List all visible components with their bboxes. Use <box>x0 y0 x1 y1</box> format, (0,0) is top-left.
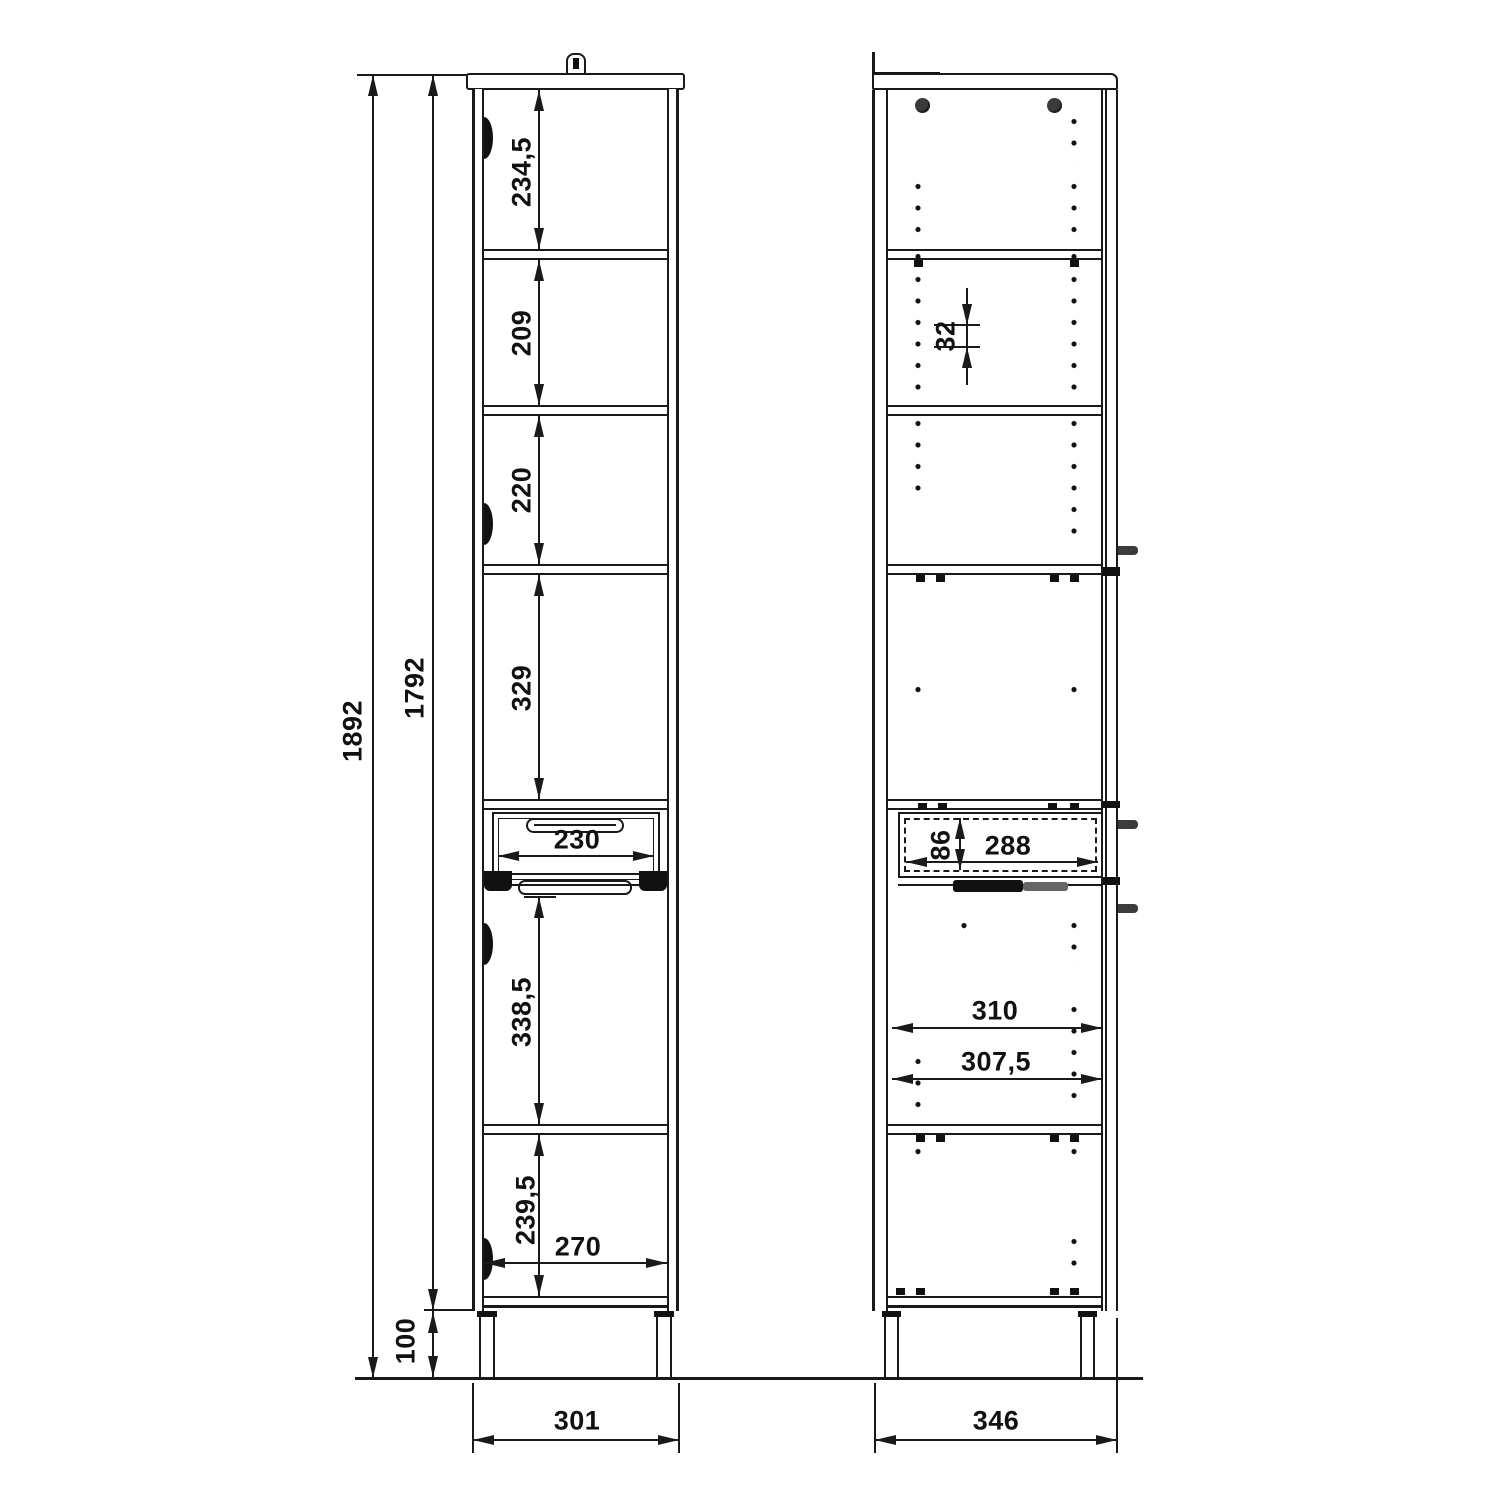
shelf-line <box>484 564 667 575</box>
shelf-bracket <box>938 803 947 810</box>
foot-mount <box>654 1311 674 1317</box>
arrow-down <box>368 1357 378 1378</box>
dimension-line-overall-depth <box>875 1439 1117 1441</box>
carcass-front-edge <box>1101 90 1103 1311</box>
shelf-line <box>484 1124 667 1135</box>
shelf-pin-holes <box>1071 922 1077 966</box>
door-side-profile <box>1105 90 1118 1311</box>
shelf-bracket <box>1048 803 1057 810</box>
shelf-bracket <box>1070 260 1079 267</box>
arrow-down <box>428 1356 438 1377</box>
hinge-pin-icon <box>1118 546 1138 555</box>
shelf-line <box>484 249 667 260</box>
foot-line <box>884 1311 886 1377</box>
side-bottom-panel <box>888 1296 1101 1308</box>
dim-label-section-5: 338,5 <box>507 977 538 1047</box>
cam-screw-icon <box>915 98 930 113</box>
foot-line <box>1080 1311 1082 1377</box>
shelf-pin-holes <box>915 1148 921 1170</box>
arrow-down <box>534 778 544 799</box>
shelf-line <box>888 405 1101 416</box>
dimension-line-hole-spacing <box>966 288 968 385</box>
shelf-line <box>888 1124 1101 1135</box>
dim-label-section-1: 234,5 <box>507 137 538 207</box>
arrow-left <box>473 1435 494 1445</box>
drawer-rail-bracket <box>518 880 632 895</box>
drawer-runner <box>953 880 1023 892</box>
arrow-up <box>368 75 378 96</box>
dimension-line-body-height <box>432 75 434 1311</box>
drawer-slide-bracket <box>484 871 512 891</box>
hinge-icon <box>484 923 493 965</box>
shelf-line <box>888 564 1101 575</box>
arrow-right <box>1096 1435 1117 1445</box>
arrow-right <box>646 1258 667 1268</box>
arrow-up <box>534 897 544 918</box>
shelf-pin-holes <box>1071 686 1077 708</box>
dim-label-section-6: 239,5 <box>511 1175 542 1245</box>
shelf-line <box>484 405 667 416</box>
shelf-pin-holes <box>915 420 921 506</box>
dimension-line-shelf-depth <box>892 1078 1102 1080</box>
dim-label-overall-width: 301 <box>554 1406 601 1437</box>
shelf-bracket <box>1050 1288 1059 1295</box>
dim-label-overall-depth: 346 <box>973 1406 1020 1437</box>
shelf-bracket <box>1070 803 1079 810</box>
shelf-pin-holes <box>1071 420 1077 549</box>
arrow-left <box>498 851 519 861</box>
foot-line <box>656 1311 658 1377</box>
front-left-panel <box>472 89 484 1311</box>
dim-label-interior-width: 270 <box>555 1232 602 1263</box>
shelf-pin-holes <box>915 183 921 248</box>
shelf-pin-holes <box>1071 1148 1077 1170</box>
arrow-down <box>534 543 544 564</box>
extension-line <box>1116 1318 1118 1453</box>
dim-label-interior-depth: 310 <box>972 996 1019 1027</box>
arrow-up <box>962 347 972 368</box>
foot-line <box>479 1311 481 1377</box>
foot-mount <box>882 1311 901 1317</box>
arrow-left <box>892 1023 913 1033</box>
door-edge-cap <box>1103 567 1120 576</box>
dim-label-shelf-depth: 307,5 <box>961 1047 1031 1078</box>
drawer-slide-bracket <box>639 871 667 891</box>
shelf-bracket <box>918 803 927 810</box>
dimension-line-section <box>538 416 540 564</box>
foot-mount <box>477 1311 497 1317</box>
arrow-left <box>875 1435 896 1445</box>
foot-line <box>897 1311 899 1377</box>
dimension-line-total-height <box>372 75 374 1378</box>
arrow-down <box>534 228 544 249</box>
dim-label-plinth: 100 <box>391 1318 422 1365</box>
hinge-icon <box>484 117 493 159</box>
shelf-bracket <box>1070 575 1079 582</box>
arrow-right <box>633 851 654 861</box>
arrow-up <box>534 416 544 437</box>
shelf-pin-holes <box>1071 118 1077 162</box>
shelf-bracket <box>1050 575 1059 582</box>
shelf-bracket <box>916 575 925 582</box>
dim-label-section-4: 329 <box>507 665 538 712</box>
shelf-pin-holes <box>1071 1238 1077 1282</box>
foot-line <box>493 1311 495 1377</box>
dimension-line-section <box>538 575 540 799</box>
arrow-down <box>955 849 965 870</box>
arrow-down <box>534 1275 544 1296</box>
arrow-left <box>906 857 927 867</box>
arrow-right <box>1081 1023 1102 1033</box>
dimension-line-interior-depth <box>892 1027 1102 1029</box>
arrow-left <box>892 1074 913 1084</box>
dim-label-total-height: 1892 <box>338 700 369 762</box>
shelf-bracket <box>916 1135 925 1142</box>
drawer-runner <box>1023 882 1068 891</box>
door-edge-cap <box>1103 801 1120 808</box>
ground-line <box>355 1377 1143 1380</box>
shelf-pin-holes <box>915 686 921 708</box>
arrow-right <box>1081 1074 1102 1084</box>
dimension-line-section <box>538 90 540 249</box>
shelf-pin-holes <box>961 922 967 944</box>
shelf-pin-holes <box>1071 276 1077 405</box>
arrow-down <box>962 304 972 325</box>
shelf-pin-holes <box>915 276 921 405</box>
dimension-line-overall-width <box>473 1439 679 1441</box>
arrow-up <box>428 75 438 96</box>
side-back-panel <box>872 90 888 1311</box>
dim-label-body-height: 1792 <box>400 657 431 719</box>
shelf-bracket <box>914 260 923 267</box>
arrow-down <box>534 384 544 405</box>
front-bottom-panel <box>484 1296 667 1308</box>
knob-slot <box>573 58 579 69</box>
dim-label-drawer-width: 230 <box>554 825 601 856</box>
shelf-bracket <box>1070 1288 1079 1295</box>
shelf-bracket <box>1050 1135 1059 1142</box>
door-edge-cap <box>1103 877 1120 885</box>
arrow-right <box>658 1435 679 1445</box>
shelf-bracket <box>1070 1135 1079 1142</box>
dimension-line-section <box>538 897 540 1124</box>
front-top-panel <box>466 73 685 90</box>
dim-label-drawer-height: 86 <box>926 829 957 860</box>
hinge-icon <box>484 503 493 545</box>
arrow-up <box>534 260 544 281</box>
dim-label-drawer-depth: 288 <box>985 831 1032 862</box>
arrow-down <box>534 1103 544 1124</box>
arrow-up <box>428 1312 438 1333</box>
arrow-down <box>428 1289 438 1310</box>
arrow-up <box>534 575 544 596</box>
dim-label-section-2: 209 <box>507 310 538 357</box>
shelf-line <box>484 799 667 810</box>
foot-line <box>1093 1311 1095 1377</box>
shelf-bracket <box>936 1135 945 1142</box>
shelf-bracket <box>936 575 945 582</box>
shelf-bracket <box>916 1288 925 1295</box>
dim-label-section-3: 220 <box>507 467 538 514</box>
shelf-bracket <box>896 1288 905 1295</box>
foot-mount <box>1078 1311 1097 1317</box>
arrow-up <box>955 818 965 839</box>
cam-screw-icon <box>1047 98 1062 113</box>
arrow-left <box>484 1258 505 1268</box>
hinge-pin-icon <box>1118 820 1138 829</box>
arrow-up <box>534 1135 544 1156</box>
arrow-up <box>534 90 544 111</box>
side-top-panel <box>872 73 1118 90</box>
hinge-pin-icon <box>1118 904 1138 913</box>
shelf-pin-holes <box>915 1058 921 1123</box>
shelf-pin-holes <box>1071 1006 1077 1114</box>
front-right-panel <box>667 89 679 1311</box>
arrow-right <box>1077 857 1098 867</box>
foot-line <box>670 1311 672 1377</box>
shelf-pin-holes <box>1071 183 1077 248</box>
technical-drawing-canvas: 1892 1792 100 230 234,5 209 <box>0 0 1500 1500</box>
dim-label-hole-spacing: 32 <box>931 320 962 351</box>
